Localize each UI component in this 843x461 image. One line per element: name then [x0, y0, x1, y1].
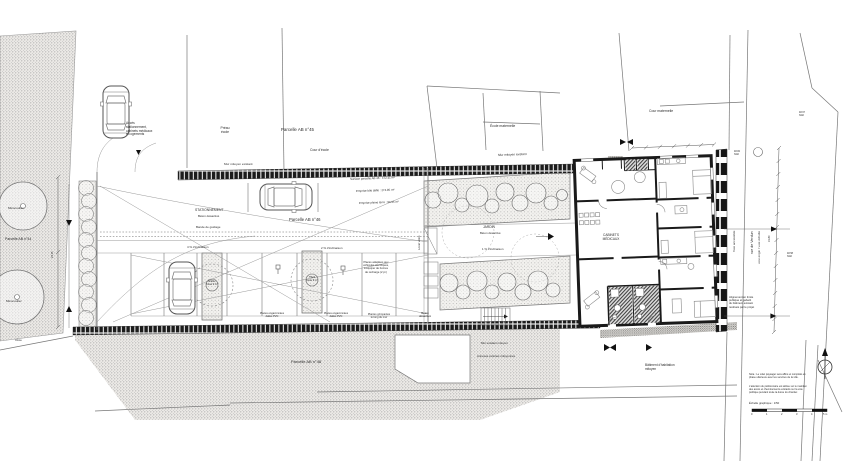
entrance-arrow: [646, 344, 652, 351]
wc-floor: [637, 159, 647, 170]
parking-layout: [97, 133, 428, 330]
access-arrow: [136, 150, 141, 155]
site-plan-drawing: [0, 0, 843, 461]
entrance-arrow: [604, 344, 610, 351]
car-icon: [101, 86, 132, 138]
annex-building: [395, 335, 470, 383]
big-tree-1: [0, 182, 47, 230]
north-arrow-icon: [818, 348, 832, 379]
floor-plan-canvas: Accès stationnement, cabinets médicaux e…: [0, 0, 843, 461]
planting-island-1: [202, 253, 222, 320]
wc-floor: [625, 159, 635, 170]
building-plan: [574, 154, 718, 326]
garden-door-arrow: [548, 233, 554, 240]
manhole-icon: [754, 148, 763, 157]
scale-bar: [752, 409, 827, 412]
car-icon: [167, 262, 198, 314]
bottom-terrain-area: [75, 326, 560, 420]
entrance-arrow: [610, 344, 616, 351]
car-icon: [260, 182, 312, 213]
